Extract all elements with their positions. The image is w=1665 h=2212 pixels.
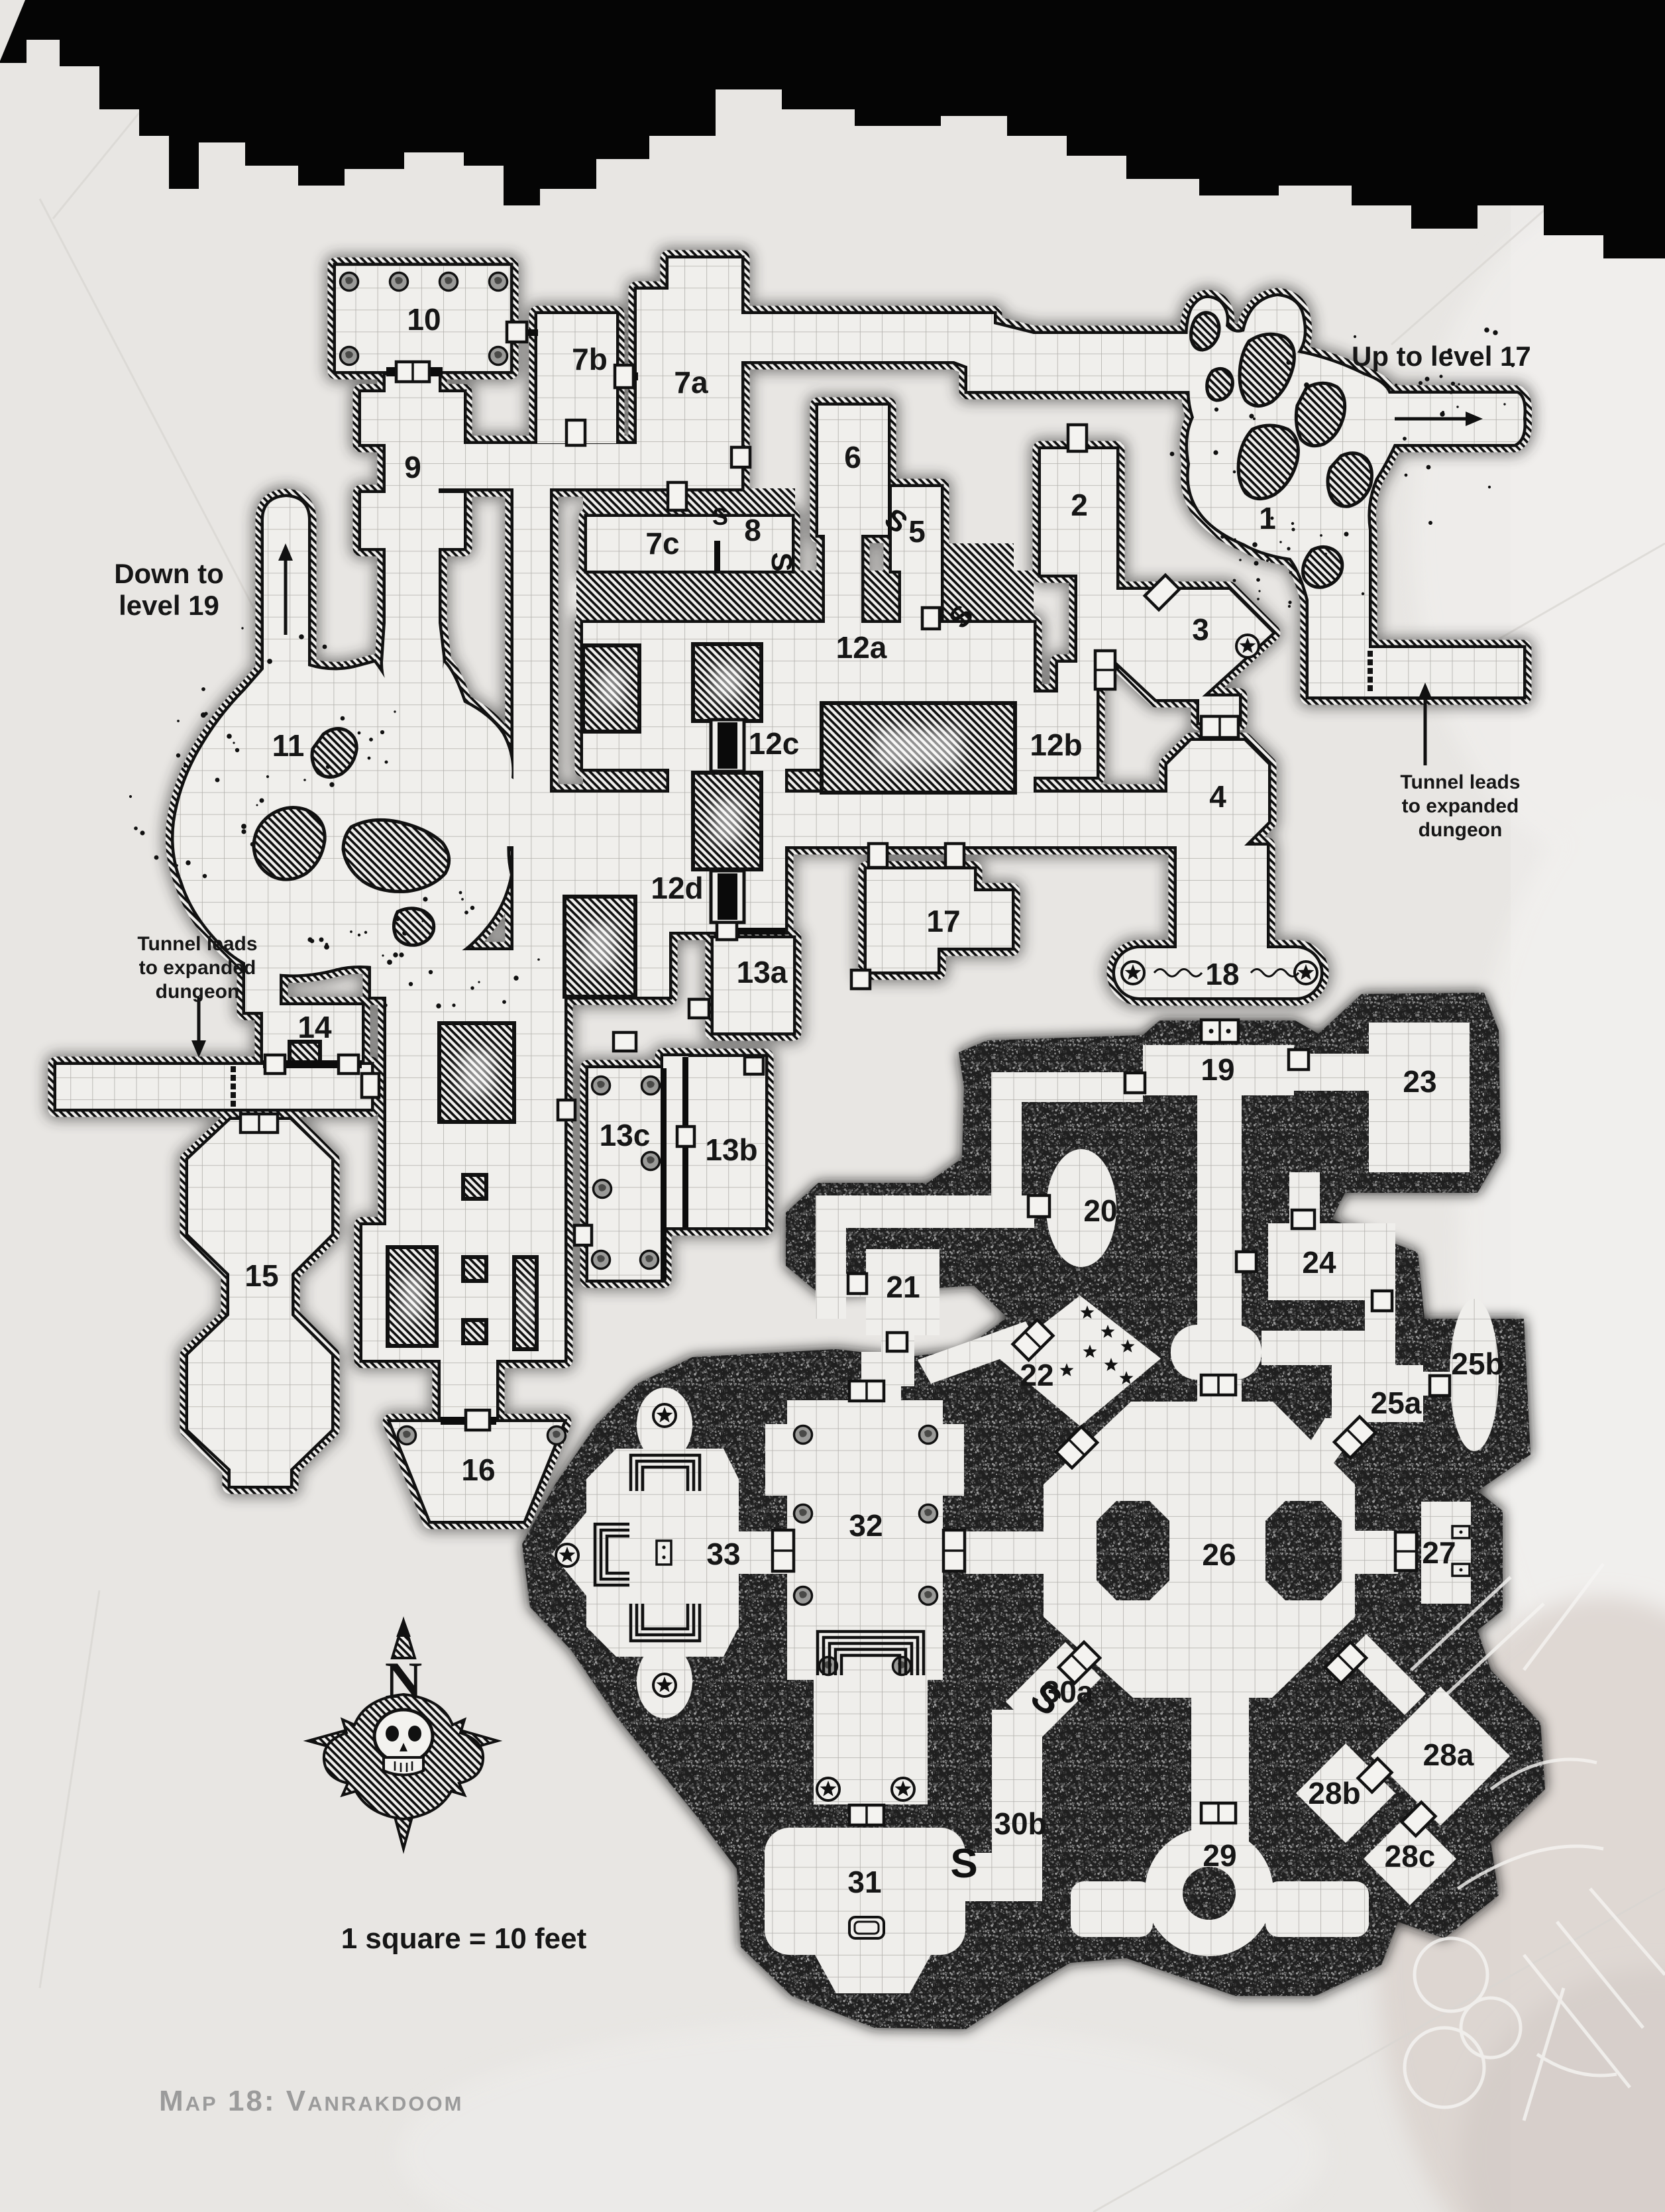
svg-text:23: 23	[1403, 1064, 1436, 1099]
svg-text:15: 15	[244, 1258, 278, 1293]
svg-text:dungeon: dungeon	[156, 981, 240, 1003]
svg-text:20: 20	[1083, 1193, 1117, 1228]
svg-text:5: 5	[908, 514, 926, 549]
svg-text:31: 31	[847, 1865, 881, 1899]
svg-text:3: 3	[1192, 612, 1209, 647]
svg-text:28c: 28c	[1385, 1839, 1436, 1873]
svg-text:to expanded: to expanded	[1402, 795, 1519, 817]
svg-text:21: 21	[886, 1270, 920, 1304]
svg-text:29: 29	[1203, 1838, 1236, 1873]
svg-text:S: S	[765, 552, 798, 571]
svg-text:1: 1	[1259, 501, 1276, 535]
svg-text:12d: 12d	[651, 871, 703, 905]
svg-text:10: 10	[407, 302, 441, 337]
svg-text:Tunnel leads: Tunnel leads	[137, 933, 257, 955]
svg-text:7b: 7b	[572, 342, 608, 376]
svg-text:6: 6	[844, 440, 861, 474]
svg-text:N: N	[385, 1651, 422, 1709]
svg-text:2: 2	[1071, 488, 1088, 522]
svg-text:S: S	[712, 503, 728, 530]
svg-text:12b: 12b	[1030, 728, 1082, 762]
svg-text:27: 27	[1422, 1535, 1456, 1570]
svg-text:25b: 25b	[1451, 1347, 1503, 1381]
svg-text:14: 14	[297, 1010, 332, 1044]
svg-text:22: 22	[1020, 1358, 1053, 1392]
svg-text:33: 33	[706, 1537, 740, 1571]
svg-text:level 19: level 19	[119, 590, 219, 621]
svg-text:19: 19	[1201, 1052, 1234, 1087]
svg-text:12c: 12c	[749, 726, 800, 761]
svg-text:16: 16	[461, 1453, 495, 1487]
svg-text:1 square = 10 feet: 1 square = 10 feet	[341, 1922, 587, 1955]
svg-text:4: 4	[1209, 779, 1226, 814]
svg-text:9: 9	[404, 450, 421, 484]
svg-text:to expanded: to expanded	[139, 957, 256, 979]
svg-text:18: 18	[1205, 957, 1239, 991]
svg-text:13c: 13c	[600, 1118, 651, 1152]
svg-text:30b: 30b	[994, 1806, 1046, 1841]
svg-text:11: 11	[272, 728, 305, 763]
svg-text:32: 32	[849, 1508, 883, 1543]
svg-text:Tunnel leads: Tunnel leads	[1400, 771, 1520, 793]
svg-text:30a: 30a	[1043, 1675, 1094, 1709]
svg-text:13b: 13b	[705, 1133, 757, 1167]
svg-text:Down to: Down to	[114, 558, 224, 589]
svg-text:17: 17	[926, 904, 960, 938]
svg-text:S: S	[950, 1841, 977, 1887]
svg-text:28a: 28a	[1423, 1738, 1474, 1772]
svg-text:Up to level 17: Up to level 17	[1352, 341, 1531, 372]
svg-text:dungeon: dungeon	[1419, 819, 1503, 841]
svg-text:24: 24	[1302, 1245, 1336, 1280]
svg-text:13a: 13a	[737, 955, 788, 989]
svg-text:Map 18: Vanrakdoom: Map 18: Vanrakdoom	[159, 2085, 463, 2117]
svg-text:7a: 7a	[674, 365, 708, 400]
svg-text:12a: 12a	[836, 630, 887, 665]
svg-text:25a: 25a	[1371, 1386, 1422, 1420]
svg-text:28b: 28b	[1308, 1776, 1360, 1810]
svg-text:7c: 7c	[645, 526, 679, 561]
svg-text:26: 26	[1202, 1537, 1236, 1572]
svg-text:8: 8	[744, 513, 761, 547]
